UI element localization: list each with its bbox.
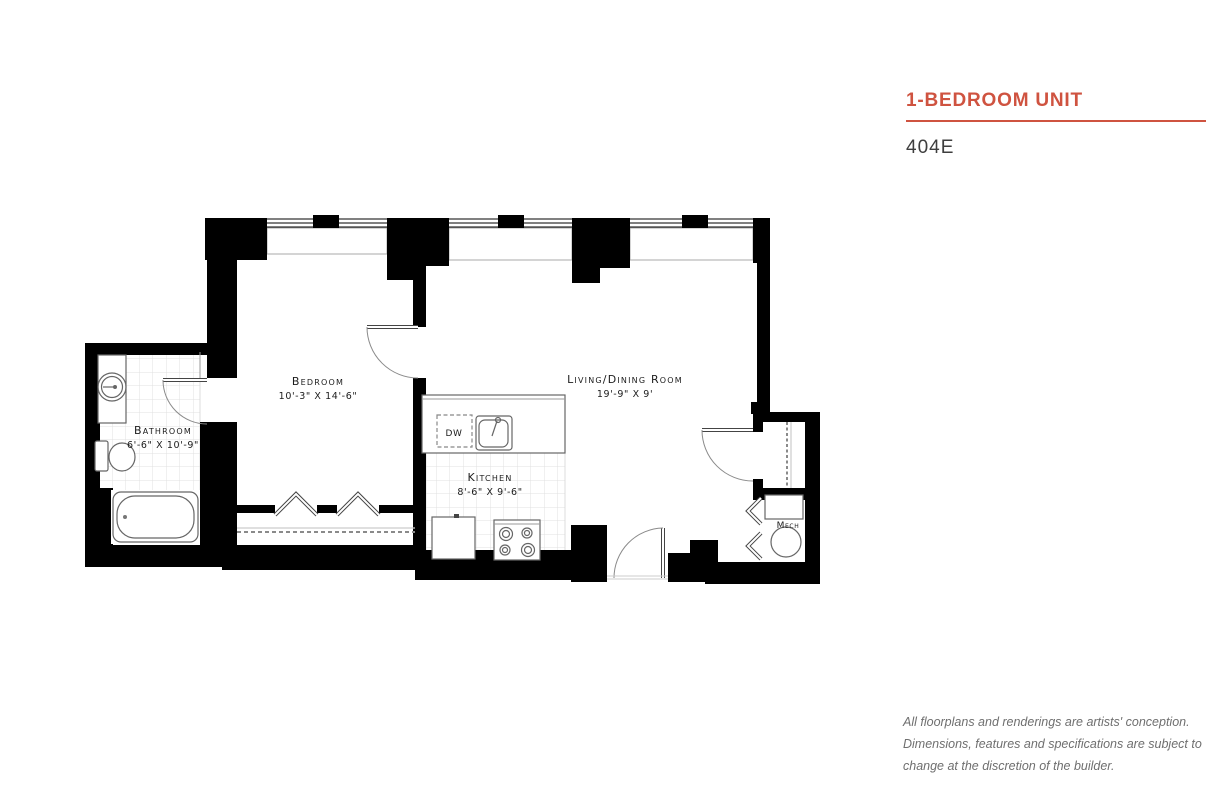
- bedroom-window: [267, 215, 387, 228]
- living-window-1: [449, 215, 572, 228]
- title-underline: [906, 120, 1206, 122]
- room-label-bedroom: Bedroom: [292, 375, 344, 388]
- window-sills: [267, 228, 753, 260]
- room-dims-kitchen: 8'-6" X 9'-6": [457, 487, 522, 498]
- room-label-mech: Mech: [777, 521, 800, 531]
- unit-number: 404E: [906, 137, 1206, 159]
- coat-closet-rod: [787, 422, 791, 488]
- bedroom-door: [367, 327, 418, 378]
- bathroom-vanity-sink: [98, 355, 126, 423]
- disclaimer-line-1: All floorplans and renderings are artist…: [903, 711, 1223, 733]
- page-title: 1-BEDROOM UNIT: [906, 90, 1206, 113]
- floorplan-drawing: DW: [85, 210, 820, 590]
- entry-door: [607, 528, 668, 579]
- room-label-living-dining: Living/Dining Room: [567, 373, 683, 386]
- room-dims-living-dining: 19'-9" X 9': [597, 389, 653, 400]
- dishwasher-label: DW: [445, 429, 462, 439]
- mech-water-heater: [771, 527, 801, 557]
- living-window-2: [630, 215, 753, 228]
- disclaimer-line-2: Dimensions, features and specifications …: [903, 733, 1223, 755]
- mech-equipment-box: [765, 495, 803, 519]
- bedroom-closet-rod: [237, 528, 415, 532]
- floorplan-svg: DW: [85, 210, 820, 590]
- disclaimer-line-3: change at the discretion of the builder.: [903, 755, 1223, 777]
- floorplan-page: 1-BEDROOM UNIT 404E All floorplans and r…: [0, 0, 1228, 794]
- info-panel: 1-BEDROOM UNIT 404E: [906, 90, 1206, 159]
- stove: [494, 520, 540, 560]
- bathtub: [111, 490, 200, 544]
- window-mullion: [682, 215, 708, 228]
- window-band: [267, 215, 753, 228]
- refrigerator: [432, 514, 475, 559]
- mech-bifold-doors: [748, 498, 761, 559]
- coat-closet-door: [702, 430, 753, 481]
- room-label-kitchen: Kitchen: [467, 471, 512, 484]
- window-mullion: [313, 215, 339, 228]
- room-dims-bedroom: 10'-3" X 14'-6": [279, 391, 358, 402]
- window-mullion: [498, 215, 524, 228]
- room-label-bathroom: Bathroom: [134, 424, 192, 437]
- disclaimer-text: All floorplans and renderings are artist…: [903, 711, 1223, 777]
- room-dims-bathroom: 6'-6" X 10'-9": [127, 440, 199, 451]
- dishwasher: DW: [437, 415, 472, 447]
